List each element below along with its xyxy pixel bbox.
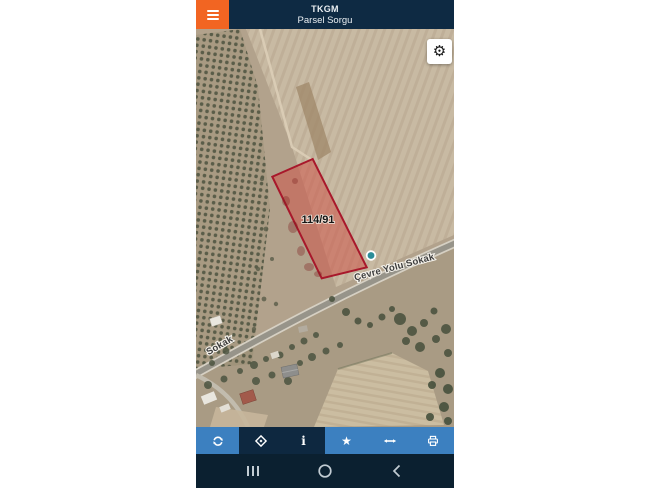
location-marker[interactable] bbox=[366, 250, 376, 260]
hamburger-menu-button[interactable] bbox=[196, 0, 229, 29]
locate-icon bbox=[254, 434, 268, 448]
bottom-toolbar: i ★ bbox=[196, 427, 454, 454]
back-button[interactable] bbox=[389, 463, 405, 479]
app-title: TKGM bbox=[311, 4, 339, 14]
measure-button[interactable] bbox=[368, 427, 411, 454]
info-button[interactable]: i bbox=[282, 427, 325, 454]
screenshot-stage: TKGM Parsel Sorgu bbox=[0, 0, 650, 488]
header-titles: TKGM Parsel Sorgu bbox=[196, 0, 454, 29]
gear-icon: ⚙ bbox=[433, 44, 446, 59]
info-icon: i bbox=[301, 434, 306, 448]
back-chevron-icon bbox=[392, 464, 402, 478]
recents-icon bbox=[246, 465, 260, 477]
print-button[interactable] bbox=[411, 427, 454, 454]
app-subtitle: Parsel Sorgu bbox=[298, 15, 353, 26]
locate-button[interactable] bbox=[239, 427, 282, 454]
satellite-map: 114/91 Çevre Yolu Sokak Sokak bbox=[196, 29, 454, 427]
measure-icon bbox=[383, 434, 397, 448]
map-settings-button[interactable]: ⚙ bbox=[427, 39, 452, 64]
favorite-button[interactable]: ★ bbox=[325, 427, 368, 454]
star-icon: ★ bbox=[341, 435, 352, 447]
home-button[interactable] bbox=[317, 463, 333, 479]
phone-screen: TKGM Parsel Sorgu bbox=[196, 0, 454, 488]
map-canvas[interactable]: 114/91 Çevre Yolu Sokak Sokak ⚙ bbox=[196, 29, 454, 427]
app-header: TKGM Parsel Sorgu bbox=[196, 0, 454, 29]
hamburger-icon bbox=[207, 10, 219, 20]
refresh-button[interactable] bbox=[196, 427, 239, 454]
refresh-icon bbox=[211, 434, 225, 448]
parcel-label: 114/91 bbox=[301, 214, 334, 226]
android-nav-bar bbox=[196, 454, 454, 488]
recents-button[interactable] bbox=[245, 463, 261, 479]
printer-icon bbox=[426, 434, 440, 448]
home-circle-icon bbox=[317, 463, 333, 479]
